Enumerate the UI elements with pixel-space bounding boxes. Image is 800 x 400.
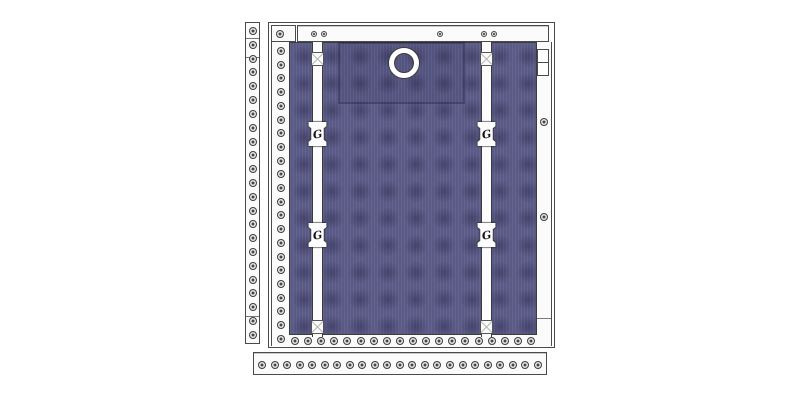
rivet-hole-icon	[521, 361, 529, 369]
rivet-hole-icon	[277, 253, 285, 261]
rivet-hole-icon	[277, 198, 285, 206]
rivet-hole-icon	[249, 96, 257, 104]
rivet-hole-icon	[277, 143, 285, 151]
buckle-letter: G	[481, 128, 492, 140]
rivet-hole-icon	[249, 110, 257, 118]
screw-icon	[481, 31, 487, 37]
rail-joint-line	[537, 318, 551, 319]
rivet-hole-icon	[509, 361, 517, 369]
rivet-hole-icon	[358, 361, 366, 369]
stitch-box-icon	[311, 52, 324, 66]
rivet-hole-row	[291, 336, 535, 345]
technical-drawing: G G G G	[0, 0, 800, 400]
rivet-hole-icon	[291, 337, 299, 345]
rivet-hole-icon	[277, 74, 285, 82]
rivet-hole-icon	[527, 337, 535, 345]
rivet-hole-icon	[475, 337, 483, 345]
buckle-letter: G	[481, 229, 492, 241]
rivet-hole-icon	[396, 361, 404, 369]
rivet-hole-icon	[249, 82, 257, 90]
rivet-hole-icon	[277, 321, 285, 329]
rivet-hole-icon	[409, 337, 417, 345]
screw-icon	[491, 31, 497, 37]
screw-icon	[321, 31, 327, 37]
rivet-hole-icon	[308, 361, 316, 369]
rivet-hole-icon	[540, 118, 548, 126]
rivet-hole-icon	[459, 361, 467, 369]
rivet-hole-icon	[249, 220, 257, 228]
rivet-hole-icon	[396, 337, 404, 345]
buckle-icon: G	[308, 122, 327, 146]
rivet-hole-icon	[333, 361, 341, 369]
rivet-hole-icon	[249, 179, 257, 187]
rivet-hole-icon	[283, 361, 291, 369]
rivet-hole-icon	[514, 337, 522, 345]
rivet-hole-icon	[277, 88, 285, 96]
rivet-hole-icon	[488, 337, 496, 345]
rivet-hole-icon	[277, 129, 285, 137]
buckle-letter: G	[312, 229, 323, 241]
buckle-icon: G	[308, 223, 327, 247]
rivet-hole-icon	[383, 361, 391, 369]
rivet-hole-icon	[471, 361, 479, 369]
rivet-hole-icon	[249, 303, 257, 311]
rivet-hole-icon	[277, 61, 285, 69]
rivet-hole-icon	[249, 207, 257, 215]
rivet-hole-icon	[461, 337, 469, 345]
stitch-box-icon	[311, 320, 324, 334]
rivet-hole-icon	[296, 361, 304, 369]
rivet-hole-icon	[371, 361, 379, 369]
rivet-hole-icon	[258, 361, 266, 369]
rivet-hole-column	[246, 27, 259, 339]
rivet-hole-icon	[277, 157, 285, 165]
rivet-hole-icon	[540, 213, 548, 221]
stitch-box-icon	[480, 52, 493, 66]
frame-top-rail	[297, 25, 549, 42]
rivet-hole-column	[272, 47, 289, 343]
rivet-hole-icon	[271, 361, 279, 369]
rivet-hole-icon	[277, 239, 285, 247]
rivet-hole-icon	[249, 331, 257, 339]
left-perforated-rail	[245, 22, 260, 344]
rivet-hole-icon	[249, 151, 257, 159]
rivet-hole-icon	[277, 335, 285, 343]
rivet-hole-icon	[370, 337, 378, 345]
rivet-hole-icon	[346, 361, 354, 369]
rivet-hole-icon	[276, 30, 284, 38]
rivet-hole-icon	[484, 361, 492, 369]
strap-right: G G	[481, 42, 492, 337]
rivet-hole-icon	[277, 47, 285, 55]
rivet-hole-icon	[249, 234, 257, 242]
rivet-hole-icon	[421, 361, 429, 369]
rivet-hole-icon	[277, 225, 285, 233]
rivet-hole-icon	[357, 337, 365, 345]
stitch-box-icon	[480, 320, 493, 334]
rivet-hole-icon	[317, 337, 325, 345]
strap-left: G G	[312, 42, 323, 337]
rivet-hole-icon	[330, 337, 338, 345]
rivet-hole-icon	[277, 307, 285, 315]
rivet-hole-icon	[501, 337, 509, 345]
frame-left-strip	[271, 42, 289, 346]
panel-frame: G G G G	[268, 22, 555, 348]
rivet-hole-icon	[448, 337, 456, 345]
rivet-hole-icon	[249, 41, 257, 49]
rivet-hole-icon	[249, 138, 257, 146]
rivet-hole-icon	[383, 337, 391, 345]
rivet-hole-icon	[249, 276, 257, 284]
rivet-hole-icon	[304, 337, 312, 345]
rivet-hole-icon	[277, 211, 285, 219]
rivet-hole-icon	[277, 294, 285, 302]
rivet-hole-icon	[435, 337, 443, 345]
screw-icon	[311, 31, 317, 37]
buckle-icon: G	[477, 223, 496, 247]
rivet-hole-icon	[534, 361, 542, 369]
fabric-panel: G G G G	[289, 42, 537, 335]
rivet-hole-icon	[343, 337, 351, 345]
rivet-hole-row	[258, 359, 542, 371]
frame-right-strip	[537, 42, 552, 346]
rivet-hole-icon	[277, 116, 285, 124]
rivet-hole-icon	[321, 361, 329, 369]
rivet-hole-icon	[249, 248, 257, 256]
rivet-hole-icon	[249, 124, 257, 132]
rivet-hole-icon	[408, 361, 416, 369]
frame-bottom-strip	[289, 334, 537, 347]
rivet-hole-icon	[446, 361, 454, 369]
rivet-hole-icon	[422, 337, 430, 345]
rivet-hole-icon	[277, 184, 285, 192]
grommet-ring-icon	[389, 48, 419, 78]
bottom-perforated-rail	[253, 352, 547, 375]
rivet-hole-icon	[249, 289, 257, 297]
buckle-icon: G	[477, 122, 496, 146]
rivet-hole-icon	[496, 361, 504, 369]
rivet-hole-icon	[249, 165, 257, 173]
screw-icon	[437, 31, 443, 37]
rivet-hole-icon	[433, 361, 441, 369]
rivet-hole-icon	[249, 55, 257, 63]
frame-corner-box	[271, 25, 296, 42]
rivet-hole-icon	[249, 193, 257, 201]
rivet-hole-icon	[277, 266, 285, 274]
rivet-hole-icon	[249, 262, 257, 270]
hinge-bracket-icon	[537, 49, 549, 76]
rivet-hole-icon	[277, 102, 285, 110]
rivet-hole-icon	[277, 280, 285, 288]
rivet-hole-icon	[249, 317, 257, 325]
rivet-hole-icon	[277, 170, 285, 178]
rivet-hole-icon	[249, 68, 257, 76]
buckle-letter: G	[312, 128, 323, 140]
rivet-hole-icon	[249, 27, 257, 35]
